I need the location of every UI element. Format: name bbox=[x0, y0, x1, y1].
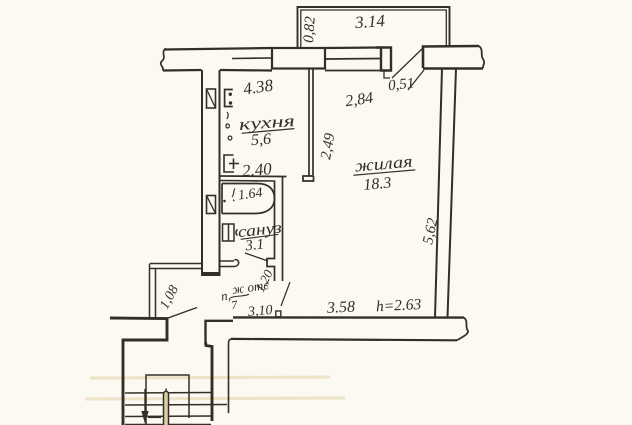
svg-text:3.1: 3.1 bbox=[244, 236, 265, 254]
svg-text:5,6: 5,6 bbox=[251, 131, 272, 149]
svg-text:0,51: 0,51 bbox=[387, 76, 415, 95]
svg-text:0,82: 0,82 bbox=[301, 15, 319, 43]
svg-text:3.14: 3.14 bbox=[353, 11, 385, 32]
svg-text:3.58: 3.58 bbox=[326, 298, 356, 316]
svg-text:18.3: 18.3 bbox=[363, 175, 392, 194]
svg-text:2.40: 2.40 bbox=[241, 159, 273, 181]
svg-text:1.64: 1.64 bbox=[237, 186, 263, 204]
svg-text:3,10: 3,10 bbox=[246, 303, 273, 320]
svg-text:h=2.63: h=2.63 bbox=[376, 296, 422, 315]
